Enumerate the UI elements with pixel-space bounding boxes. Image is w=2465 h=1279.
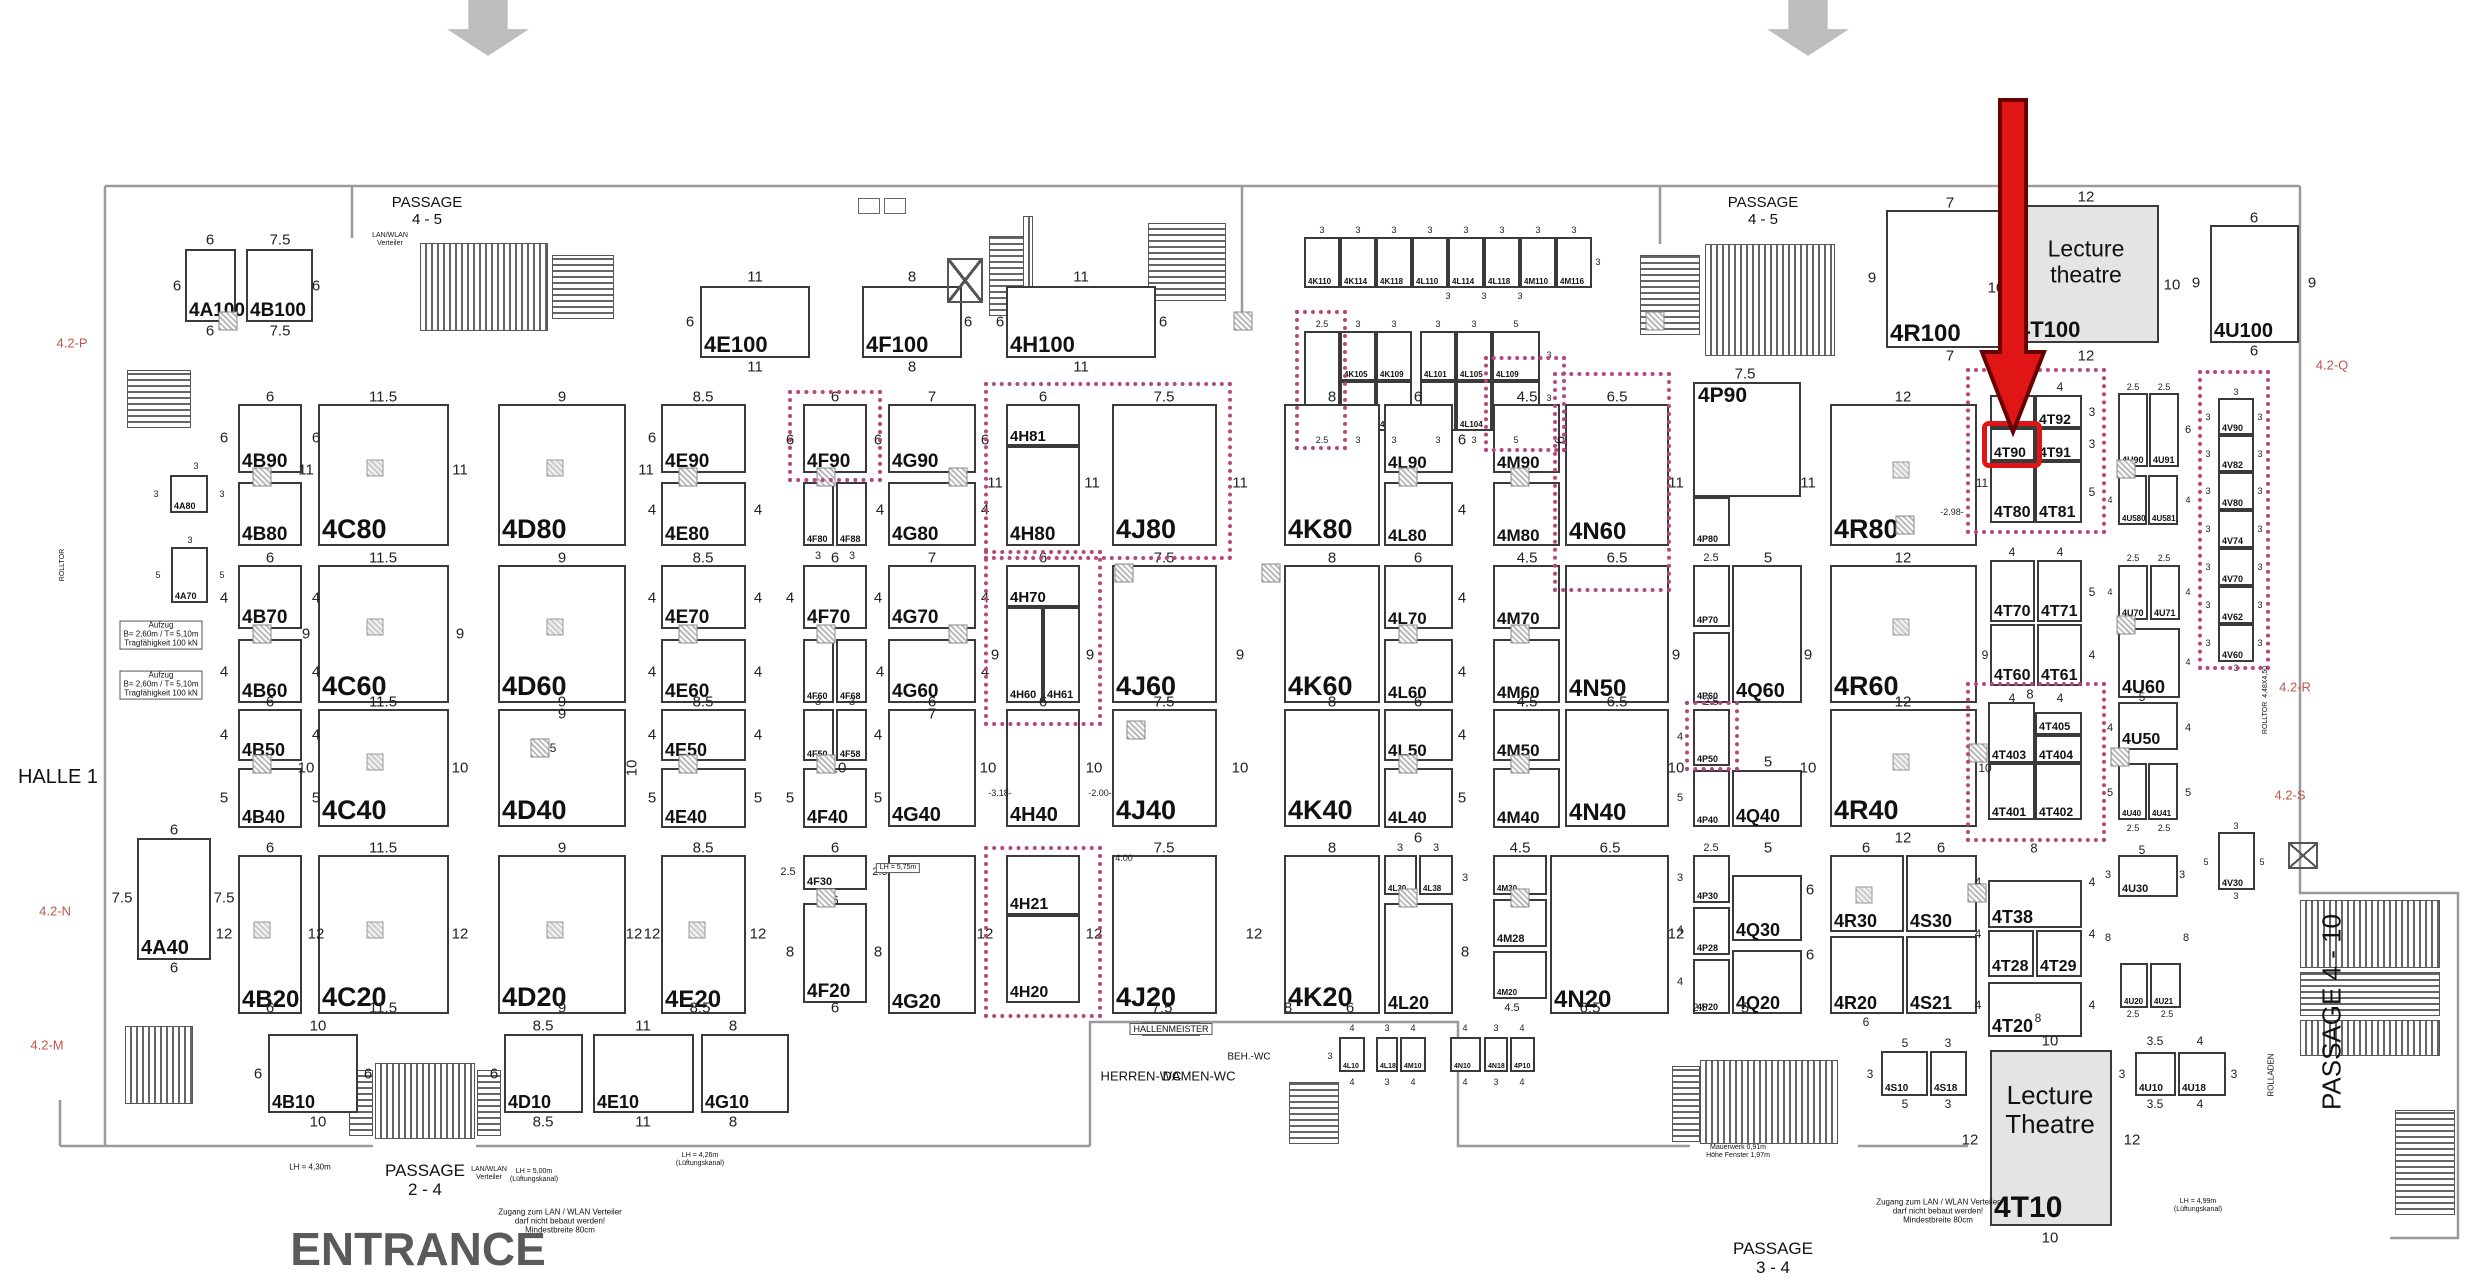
target-marker	[0, 0, 2465, 1279]
floor-plan: 4A1004B1004E1004F1004H1004R1004T1004U100…	[0, 0, 2465, 1279]
target-marker-arrow	[1982, 100, 2044, 432]
